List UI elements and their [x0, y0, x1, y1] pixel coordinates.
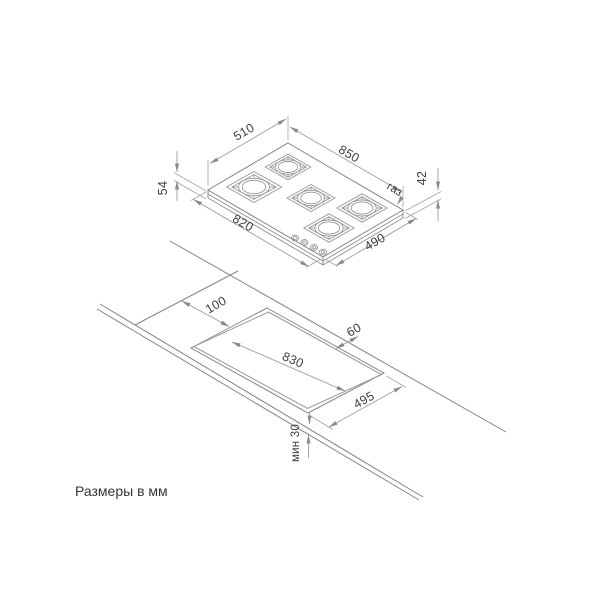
technical-drawing-page: 510 850 54 42 820 [0, 0, 600, 600]
dim-min30-label: мин 30 [290, 424, 302, 462]
dim-54-label: 54 [156, 181, 170, 196]
burner-right [337, 194, 387, 222]
hob-isometric-view: 510 850 54 42 820 [156, 116, 441, 268]
dim-height-right: 42 [405, 168, 441, 221]
dim-cutout-depth: 495 [311, 376, 407, 430]
dim-depth-rear: 510 [208, 116, 288, 186]
dim-height-left: 54 [156, 151, 206, 201]
dim-depth-front: 490 [326, 213, 419, 267]
burner-front-center [304, 214, 354, 242]
burner-rear-center [265, 154, 311, 180]
dim-850-label: 850 [336, 142, 362, 165]
dim-490-label: 490 [362, 230, 388, 253]
hob-dimension-drawing: 510 850 54 42 820 [0, 0, 600, 600]
burner-center [287, 185, 335, 212]
dim-820-label: 820 [230, 211, 256, 234]
worktop-cutout-view: 100 60 830 495 мин 30 [97, 241, 506, 500]
dim-42-label: 42 [415, 171, 429, 186]
dim-495-label: 495 [351, 389, 377, 412]
units-note: Размеры в мм [75, 483, 168, 499]
dim-830-label: 830 [280, 349, 306, 371]
dim-rear-offset: 60 [336, 320, 364, 348]
dim-side-offset: 100 [182, 293, 247, 347]
dim-100-label: 100 [203, 293, 229, 316]
dim-60-label: 60 [344, 320, 364, 339]
dim-cutout-width: 830 [232, 342, 345, 391]
burner-left [226, 172, 281, 203]
dim-510-label: 510 [231, 120, 257, 143]
